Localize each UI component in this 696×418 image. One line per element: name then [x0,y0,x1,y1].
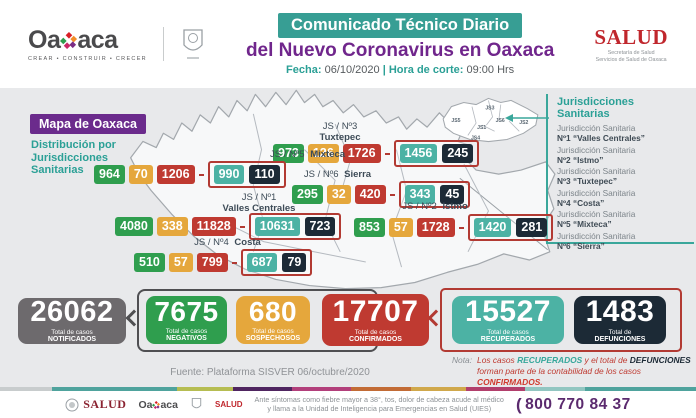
legend-item-name: Nº3 “Tuxtepec” [557,176,694,186]
legend-item-kind: Jurisdicción Sanitaria [557,232,694,241]
banner-title: Comunicado Técnico Diario [278,13,522,38]
connector-dash [232,262,237,264]
note-defunciones: DEFUNCIONES [630,355,691,365]
chip-confirmados: 1728 [417,218,455,237]
total-recuperados-box: 15527 Total de casos RECUPERADOS [452,296,564,344]
region-number: JS / Nº1 [213,193,305,204]
legend-item-name: Nº5 “Mixteca” [557,219,694,229]
minimap-label-js3: JS3 [485,106,494,112]
legend-title-line2: Sanitarias [557,108,694,120]
chip-negativos: 510 [134,253,165,272]
date-separator: | [383,64,386,76]
region-label-sierra: JS / Nº6 Sierra [295,170,380,181]
total-label: Total de casos [51,329,93,336]
total-label: Total de casos [166,328,208,335]
oaxaca-word-left: Oa [28,26,60,55]
legend-item: Jurisdicción Sanitaria Nº4 “Costa” [557,189,694,208]
region-chips-istmo: 853 57 1728 1420 281 [354,214,553,241]
footer-oaxaca-logo: Oa aca [138,399,178,411]
chip-sospechosos: 57 [169,253,193,272]
logo-divider [163,27,164,61]
legend-item-name: Nº2 “Istmo” [557,155,694,165]
total-recuperados-value: 15527 [465,297,551,327]
fecha-label: Fecha: [286,64,321,76]
total-label-bold: NOTIFICADOS [48,336,96,344]
date-line: Fecha: 06/10/2020 | Hora de corte: 09:00… [246,64,554,76]
region-name: Costa [234,237,260,248]
minimap-label-js1: JS1 [477,125,486,131]
total-notificados-value: 26062 [30,298,113,327]
page-title: del Nuevo Coronavirus en Oaxaca [246,40,554,62]
header-titles: Comunicado Técnico Diario del Nuevo Coro… [246,13,554,76]
chip-negativos: 4080 [115,217,153,236]
chip-recuperados: 1420 [474,218,512,237]
chip-defunciones: 723 [305,217,336,236]
total-negativos-box: 7675 Total de casos NEGATIVOS [146,296,227,344]
region-number: JS / Nº3 [300,122,380,133]
footer-message: Ante síntomas como fiebre mayor a 38°, t… [255,396,504,413]
footer-oaxaca-right: aca [160,399,178,411]
header: Oa aca CREAR • CONSTRUIR • CRECER [0,0,696,88]
recovered-deaths-box: 990 110 [208,161,286,188]
region-name: Istmo [442,201,467,212]
chip-defunciones: 245 [442,144,473,163]
footer-bar: SALUD Oa aca SALUD Ante síntomas como fi… [0,391,696,418]
total-negativos-value: 7675 [154,298,218,326]
jurisdictions-legend: Jurisdicciones Sanitarias Jurisdicción S… [546,94,694,244]
total-label-bold: SOSPECHOSOS [246,335,300,343]
total-label-bold: NEGATIVOS [166,335,207,343]
legend-item-kind: Jurisdicción Sanitaria [557,167,694,176]
total-label-bold: RECUPERADOS [481,336,535,344]
legend-item-name: Nº6 “Sierra” [557,241,694,251]
region-label-istmo: JS / Nº2 Istmo [390,202,480,213]
chip-confirmados: 1206 [157,165,195,184]
connector-dash [385,153,390,155]
recovered-deaths-box: 687 79 [241,249,313,276]
total-notificados-box: 26062 Total de casos NOTIFICADOS [18,298,126,344]
legend-item: Jurisdicción Sanitaria Nº3 “Tuxtepec” [557,167,694,186]
chip-confirmados: 11828 [192,217,236,236]
infographic-page: Oa aca CREAR • CONSTRUIR • CRECER [0,0,696,418]
footer-salud-state-word: SALUD [215,400,243,409]
chip-confirmados: 420 [355,185,386,204]
note-seg: forman parte de la contabilidad de los c… [477,366,641,376]
salud-logo: SALUD Secretaría de Salud Servicios de S… [594,25,668,63]
total-defunciones-value: 1483 [586,297,655,327]
chip-negativos: 964 [94,165,125,184]
region-name: Mixteca [310,149,345,160]
legend-item-kind: Jurisdicción Sanitaria [557,210,694,219]
total-label: Total de casos [487,329,529,336]
fecha-value: 06/10/2020 [325,64,380,76]
connector-dash [240,226,245,228]
region-label-costa: JS / Nº4 Costa [185,238,270,249]
oaxaca-pinwheel-icon [60,32,77,49]
chip-sospechosos: 57 [389,218,413,237]
total-confirmados-value: 17707 [333,297,419,327]
note-seg: y el total de [582,355,630,365]
legend-item: Jurisdicción Sanitaria Nº1 “Valles Centr… [557,124,694,143]
region-chips-mixteca: 964 70 1206 990 110 [94,161,286,188]
oaxaca-tagline: CREAR • CONSTRUIR • CRECER [28,56,147,62]
legend-item: Jurisdicción Sanitaria Nº2 “Istmo” [557,146,694,165]
state-coat-of-arms-icon [180,27,206,61]
note-confirmados: CONFIRMADOS. [477,377,543,387]
note-block: Nota: Los casos RECUPERADOS y el total d… [452,355,694,388]
connector-dash [459,227,464,229]
chip-negativos: 853 [354,218,385,237]
footer-salud-gov-logo: SALUD [65,397,126,412]
salud-wordmark: SALUD [594,25,668,50]
region-label-mixteca: JS / Nº5 Mixteca [240,150,375,161]
chip-recuperados: 687 [247,253,278,272]
minimap-label-js5: JS5 [451,118,460,124]
connector-dash [390,194,395,196]
map-badge: Mapa de Oaxaca [30,114,146,134]
legend-item-name: Nº1 “Valles Centrales” [557,133,694,143]
chip-sospechosos: 32 [327,185,351,204]
note-text: Los casos RECUPERADOS y el total de DEFU… [477,355,694,388]
chip-defunciones: 110 [249,165,279,184]
note-label: Nota: [452,355,472,388]
chip-recuperados: 1456 [400,144,438,163]
chip-defunciones: 281 [516,218,547,237]
region-chips-costa: 510 57 799 687 79 [134,249,312,276]
footer-shield-icon [190,397,203,413]
oaxaca-word-right: aca [77,26,117,55]
legend-arrow-icon [503,110,551,126]
legend-item-kind: Jurisdicción Sanitaria [557,189,694,198]
footer-pinwheel-icon [152,401,160,409]
footer-salud-gov-word: SALUD [83,397,126,412]
chip-sospechosos: 70 [129,165,153,184]
legend-item-kind: Jurisdicción Sanitaria [557,146,694,155]
chip-defunciones: 79 [282,253,306,272]
salud-sub2: Servicios de Salud de Oaxaca [594,57,668,64]
chip-recuperados: 10631 [255,217,300,236]
note-recuperados: RECUPERADOS [517,355,582,365]
oaxaca-wordmark: Oa aca [28,26,147,55]
region-number: JS / Nº4 [194,237,229,248]
phone-number: 800 770 84 37 [525,396,631,414]
total-sospechosos-box: 680 Total de casos SOSPECHOSOS [236,296,310,344]
map-subtitle-line1: Distribución por [31,139,116,152]
recovered-deaths-box: 10631 723 [249,213,342,240]
source-text: Fuente: Plataforma SISVER 06/octubre/202… [120,367,420,378]
footer-message-line2: y llama a la Unidad de Inteligencia para… [255,405,504,414]
legend-item: Jurisdicción Sanitaria Nº6 “Sierra” [557,232,694,251]
hora-value: 09:00 Hrs [466,64,514,76]
region-number: JS / Nº5 [270,149,305,160]
total-confirmados-box: 17707 Total de casos CONFIRMADOS [322,294,429,346]
legend-title: Jurisdicciones Sanitarias [557,96,694,120]
total-label-bold: DEFUNCIONES [595,336,646,344]
legend-item-name: Nº4 “Costa” [557,198,694,208]
region-name: Sierra [344,169,371,180]
legend-item-kind: Jurisdicción Sanitaria [557,124,694,133]
oaxaca-logo: Oa aca CREAR • CONSTRUIR • CRECER [28,26,206,62]
chip-sospechosos: 338 [157,217,188,236]
region-chips-valles-centrales: 4080 338 11828 10631 723 [115,213,341,240]
chip-recuperados: 990 [214,165,245,184]
legend-item: Jurisdicción Sanitaria Nº5 “Mixteca” [557,210,694,229]
hora-label: Hora de corte: [389,64,464,76]
recovered-deaths-box: 1420 281 [468,214,554,241]
region-label-valles-centrales: JS / Nº1 Valles Centrales [213,193,305,214]
legend-title-line1: Jurisdicciones [557,96,694,108]
region-number: JS / Nº6 [304,169,339,180]
total-sospechosos-value: 680 [249,298,297,326]
phone-icon: ( [516,395,522,415]
recovered-deaths-box: 1456 245 [394,140,480,167]
total-label-bold: CONFIRMADOS [349,336,402,344]
chip-confirmados: 799 [197,253,228,272]
total-label: Total de casos [252,328,294,335]
region-number: JS / Nº2 [402,201,437,212]
total-defunciones-box: 1483 Total de DEFUNCIONES [574,296,666,344]
footer-phone: ( 800 770 84 37 [516,395,631,415]
total-label: Total de casos [355,329,397,336]
gov-seal-icon [65,398,79,412]
total-label: Total de [609,329,632,336]
connector-dash [199,174,204,176]
footer-oaxaca-left: Oa [138,399,152,411]
note-seg: Los casos [477,355,517,365]
